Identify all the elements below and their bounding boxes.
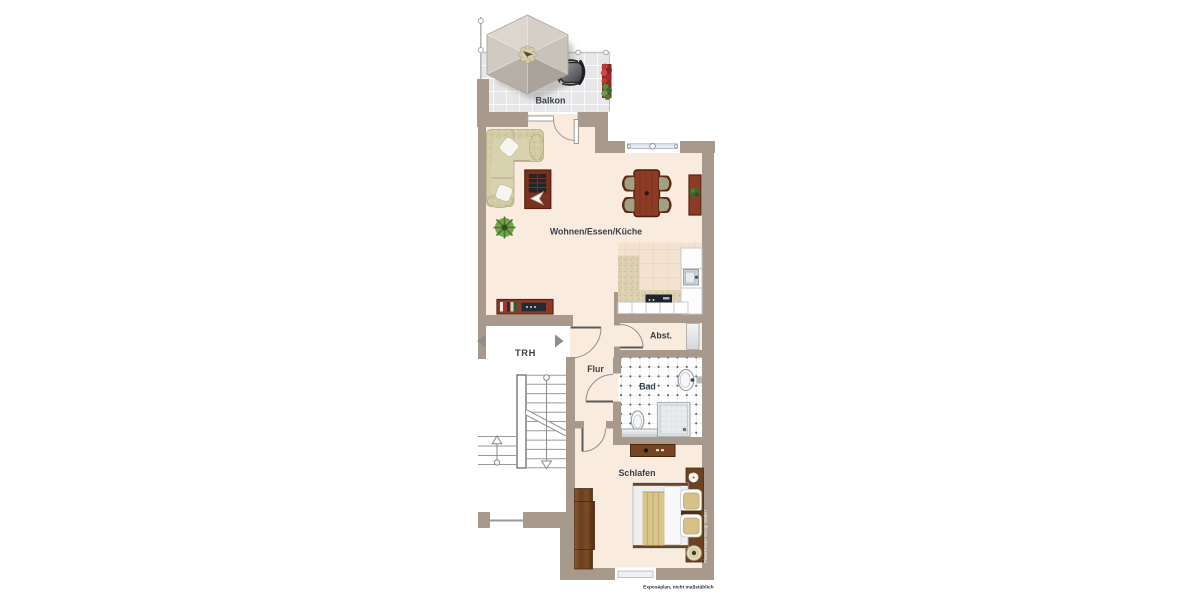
svg-text:Abst.: Abst. [650, 331, 672, 341]
svg-text:Wohnen/Essen/Küche: Wohnen/Essen/Küche [550, 227, 642, 237]
svg-text:Schlafen: Schlafen [619, 468, 656, 478]
svg-text:Flur: Flur [587, 364, 604, 374]
svg-text:Bad: Bad [639, 382, 656, 392]
svg-text:Exposéplan, nicht maßstäblich: Exposéplan, nicht maßstäblich [643, 585, 713, 591]
svg-text:Balkon: Balkon [535, 96, 565, 106]
svg-text:TRH: TRH [515, 348, 536, 358]
svg-text:PlanetHome Group GmbH: PlanetHome Group GmbH [703, 510, 708, 563]
